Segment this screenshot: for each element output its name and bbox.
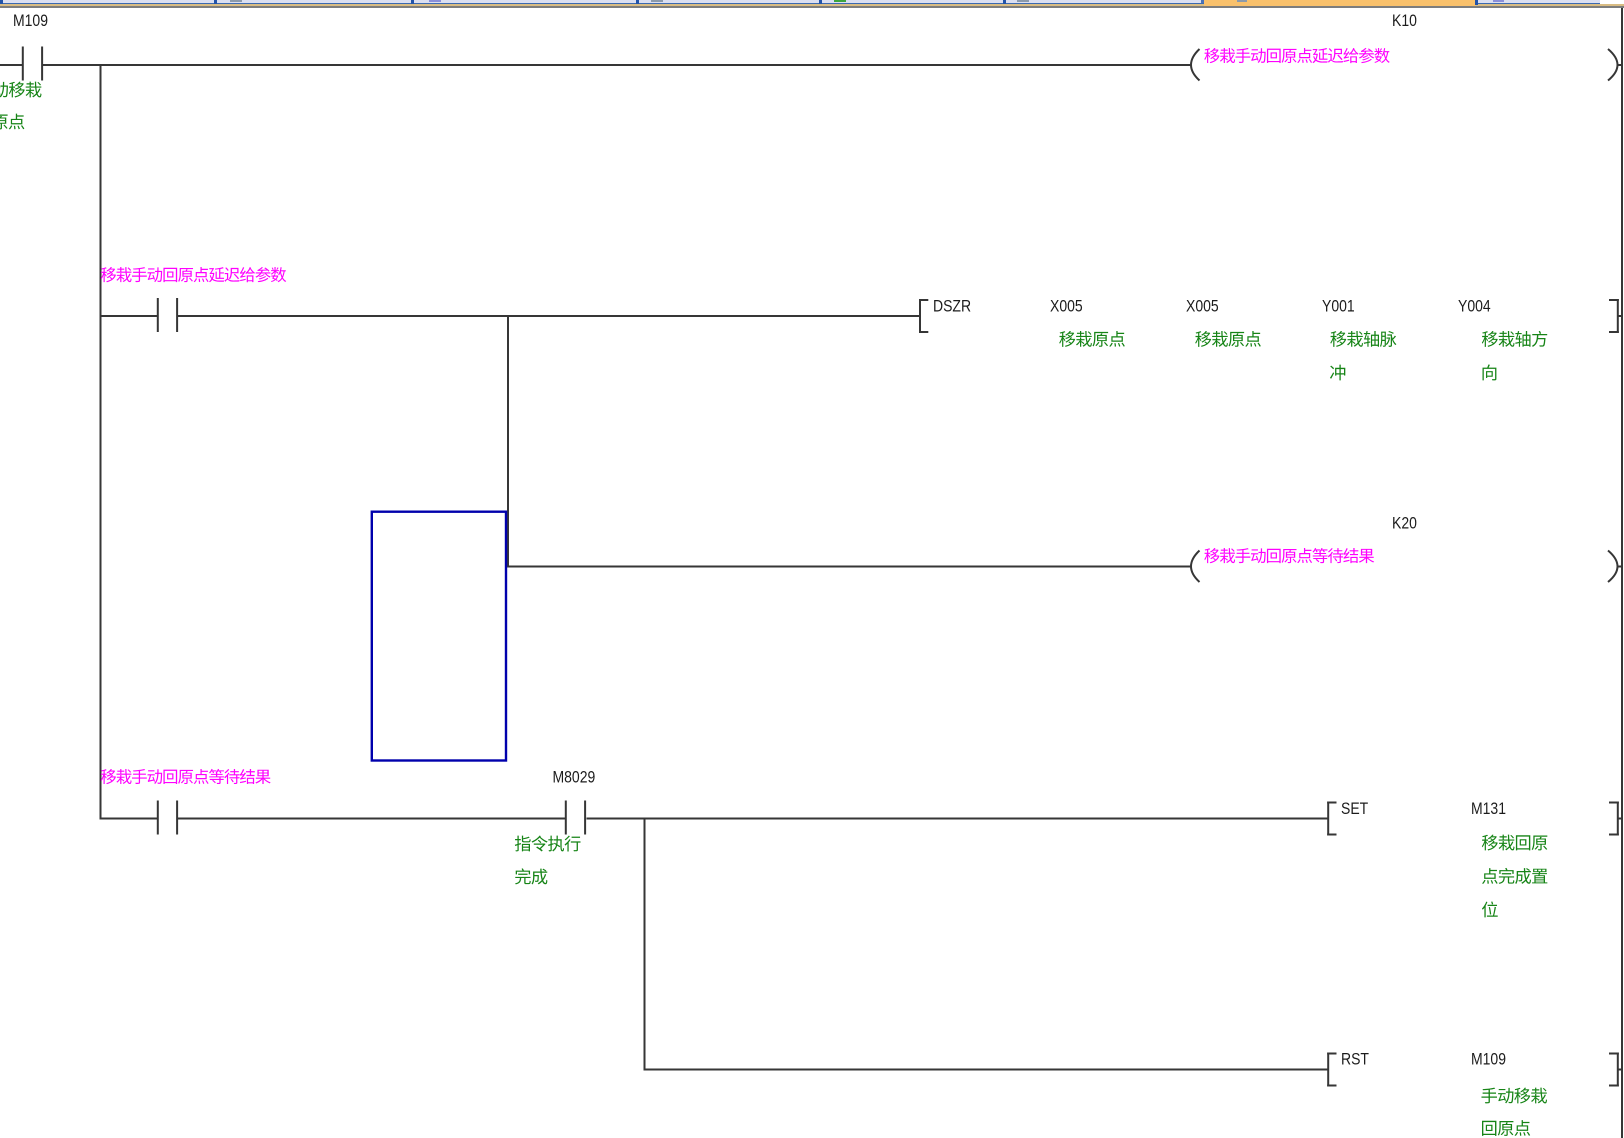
svg-text:SET: SET — [1341, 800, 1368, 818]
svg-text:M131: M131 — [1471, 800, 1506, 818]
svg-text:K10: K10 — [1392, 12, 1417, 30]
svg-text:M8029: M8029 — [553, 768, 596, 786]
svg-text:Y001: Y001 — [1322, 297, 1355, 315]
svg-text:X005: X005 — [1050, 297, 1083, 315]
svg-text:K20: K20 — [1392, 514, 1417, 532]
svg-text:M109: M109 — [1471, 1050, 1506, 1068]
svg-text:M109: M109 — [13, 12, 48, 30]
svg-text:RST: RST — [1341, 1050, 1369, 1068]
svg-text:Y004: Y004 — [1458, 297, 1491, 315]
svg-text:DSZR: DSZR — [933, 297, 971, 315]
svg-text:X005: X005 — [1186, 297, 1219, 315]
